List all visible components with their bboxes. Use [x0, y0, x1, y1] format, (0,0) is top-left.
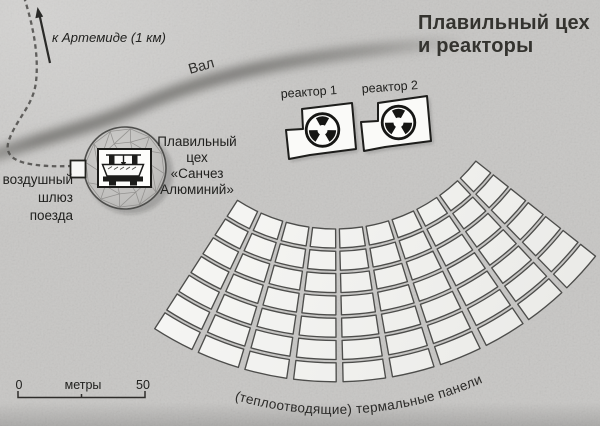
- svg-text:цех: цех: [186, 150, 208, 165]
- title-line2: и реакторы: [418, 35, 533, 57]
- svg-text:Алюминий»: Алюминий»: [160, 182, 234, 197]
- scale-unit-label: метры: [65, 378, 102, 392]
- furnace-icon: [98, 149, 151, 187]
- artemis-direction-label: к Артемиде (1 км): [52, 30, 166, 45]
- thermal-panel: [310, 228, 336, 248]
- thermal-panel: [342, 337, 382, 359]
- thermal-panel: [340, 249, 369, 270]
- svg-text:Плавильный: Плавильный: [157, 134, 236, 149]
- scale-start-label: 0: [16, 378, 23, 392]
- thermal-panel: [343, 359, 386, 382]
- thermal-panel: [294, 360, 337, 381]
- facility-map: Вал к Артемиде (1 км) Плавильный цех и р…: [0, 0, 600, 426]
- thermal-panel: [308, 250, 336, 271]
- scan-shadow: [0, 402, 600, 426]
- svg-text:воздушный: воздушный: [3, 172, 73, 187]
- thermal-panel: [281, 222, 309, 246]
- scale-end-label: 50: [136, 378, 150, 392]
- radiation-icon: [382, 106, 415, 139]
- thermal-panel: [341, 271, 373, 293]
- svg-text:шлюз: шлюз: [38, 190, 73, 205]
- thermal-panel: [296, 338, 336, 359]
- thermal-panel: [302, 294, 336, 315]
- thermal-panel: [339, 227, 365, 248]
- thermal-panel: [342, 315, 379, 337]
- svg-text:поезда: поезда: [30, 208, 74, 223]
- thermal-panel: [299, 316, 336, 337]
- thermal-panel: [305, 272, 336, 293]
- radiation-icon: [306, 114, 339, 147]
- facility-map-page: Вал к Артемиде (1 км) Плавильный цех и р…: [0, 0, 600, 426]
- title-line1: Плавильный цех: [418, 12, 590, 34]
- svg-text:«Санчез: «Санчез: [171, 166, 224, 181]
- thermal-panel: [341, 293, 375, 315]
